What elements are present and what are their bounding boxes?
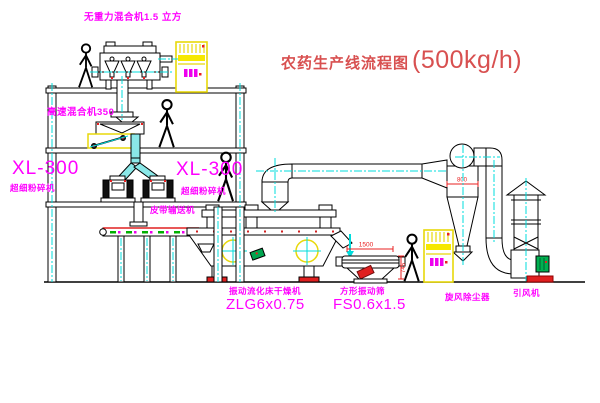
label-pulverizer-right-model: XL-300 — [176, 160, 243, 179]
label-fan: 引风机 — [513, 289, 540, 298]
label-sieve-name: 方形振动筛 — [340, 287, 385, 296]
pulverizer-left — [101, 180, 135, 202]
sieve-height-dim: 745 — [401, 262, 407, 273]
gravity-free-mixer — [92, 42, 172, 117]
label-belt-conveyor: 皮带输送机 — [150, 206, 195, 215]
cabinet-display-text — [184, 69, 198, 77]
label-dryer-name: 振动流化床干燥机 — [229, 287, 301, 296]
fluid-bed-dryer — [187, 202, 352, 282]
cyclone-separator: 800 — [447, 144, 514, 274]
label-pulverizer-left-name: 超细粉碎机 — [10, 184, 55, 193]
title-capacity: (500kg/h) — [412, 46, 522, 75]
label-sieve-model: FS0.6x1.5 — [333, 297, 406, 312]
pulverizer-right — [141, 180, 175, 202]
label-cyclone: 旋风除尘器 — [445, 293, 490, 302]
cyclone-width-dim: 800 — [457, 178, 468, 184]
label-gravity-mixer: 无重力混合机1.5 立方 — [84, 13, 182, 23]
mixer-funnels — [105, 57, 151, 79]
title-text: 农药生产线流程图 — [281, 52, 409, 73]
person-icon — [159, 100, 173, 147]
person-icon — [404, 235, 418, 282]
pesticide-line-flow-diagram: 800 — [0, 0, 600, 403]
label-dryer-model: ZLG6x0.75 — [226, 297, 305, 312]
induced-draft-fan — [511, 250, 553, 282]
person-icon — [79, 44, 92, 87]
label-high-speed-mixer: 高速混合机350 — [47, 108, 114, 118]
y-feed-duct — [110, 158, 165, 180]
label-pulverizer-right-name: 超细粉碎机 — [181, 187, 226, 196]
exhaust-duct — [262, 160, 447, 202]
control-cabinet-top — [176, 42, 207, 92]
sieve-length-dim: 1500 — [359, 242, 374, 249]
control-cabinet-ground — [424, 230, 453, 282]
cabinet-display-text — [430, 258, 444, 266]
label-pulverizer-left-model: XL-300 — [12, 159, 79, 178]
diagram-title: 农药生产线流程图 (500kg/h) — [281, 46, 522, 75]
